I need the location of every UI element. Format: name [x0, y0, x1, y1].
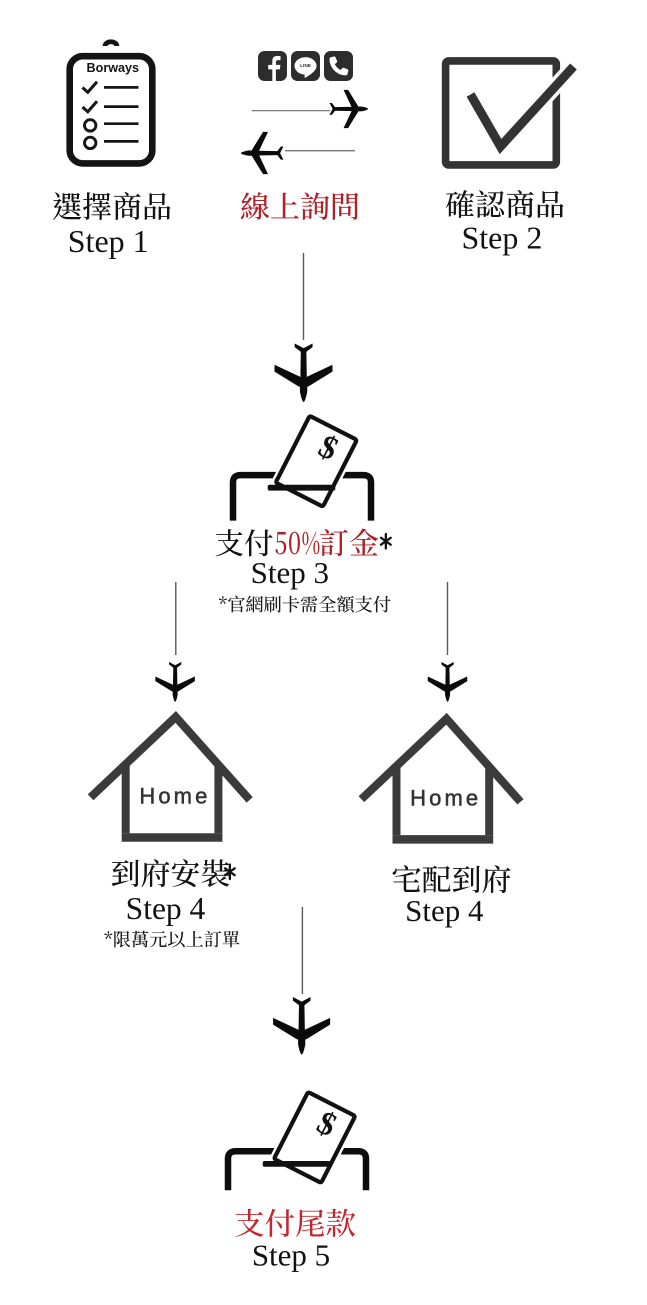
svg-text:Step 1: Step 1 [68, 223, 149, 259]
svg-text:Home: Home [139, 784, 210, 809]
svg-text:Step 3: Step 3 [251, 555, 329, 590]
svg-text:Step 5: Step 5 [252, 1238, 330, 1273]
svg-text:Home: Home [410, 785, 481, 810]
svg-text:Borways: Borways [87, 61, 140, 75]
svg-text:Step 4: Step 4 [405, 893, 484, 928]
svg-text:LINE: LINE [300, 63, 312, 69]
svg-text:Step 4: Step 4 [126, 891, 206, 926]
svg-text:Step 2: Step 2 [461, 220, 542, 256]
